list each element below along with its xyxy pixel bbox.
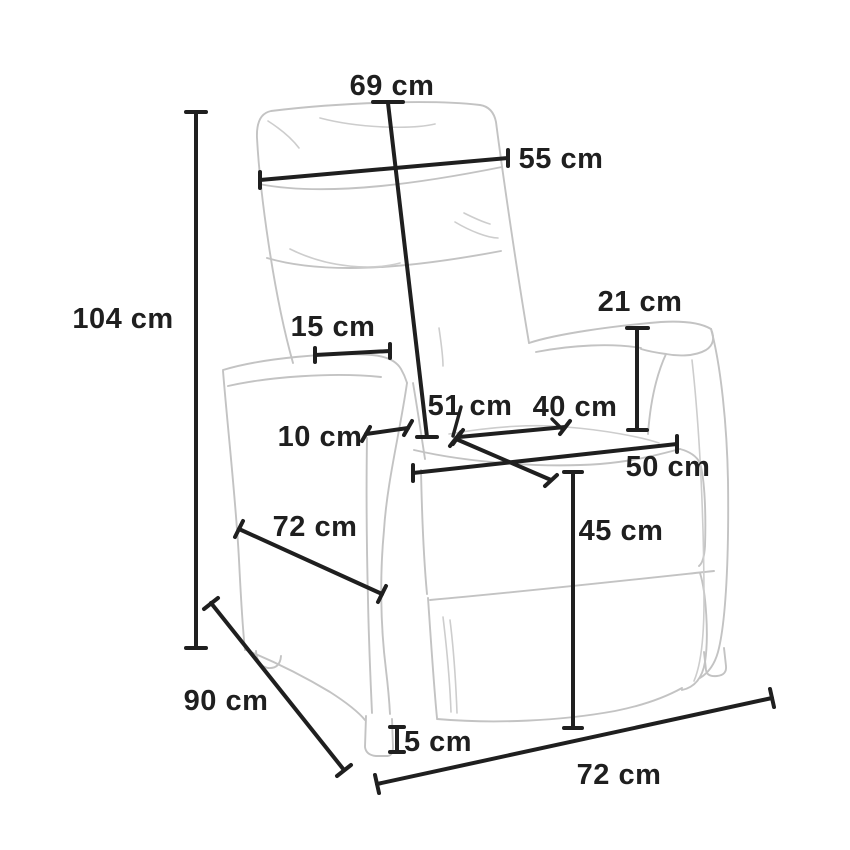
right-armrest-front-edge [648, 354, 666, 434]
dimension-backrest-to-armrest: 15 cm [291, 311, 390, 362]
right-panel-crease [692, 360, 704, 681]
footrest-left-edge [428, 598, 437, 718]
dimension-seat-front-width: 50 cm [413, 436, 710, 483]
dimension-line [260, 158, 508, 180]
front-column-left-edge [367, 438, 372, 713]
dimension-tick [375, 775, 379, 793]
dimension-seat-height: 45 cm [564, 472, 663, 728]
dimension-total-height: 104 cm [72, 112, 206, 648]
right-armrest-scroll [641, 329, 713, 355]
dimension-line [366, 428, 408, 434]
right-armrest-roll [536, 345, 641, 352]
backrest-crease-right-2 [464, 213, 490, 224]
backrest-crease-right [455, 222, 498, 238]
right-armrest-top [529, 322, 711, 343]
dimension-total-depth: 90 cm [184, 598, 351, 776]
front-left-foot [365, 716, 393, 756]
dimension-label: 69 cm [350, 70, 435, 102]
dimension-diagram-canvas: 69 cm 55 cm 104 cm 15 cm 21 cm [0, 0, 850, 850]
dimension-label: 45 cm [579, 515, 664, 547]
dimension-label: 40 cm [533, 391, 618, 423]
backrest-fold [439, 328, 443, 366]
dimension-label: 72 cm [577, 759, 662, 791]
left-side-outer-edge [223, 371, 245, 650]
dimension-side-base-depth: 72 cm [235, 511, 386, 602]
headrest-crease-top [320, 118, 435, 127]
dimension-foot-height: 5 cm [390, 726, 472, 758]
dimension-label: 104 cm [72, 303, 173, 335]
dimension-line [388, 103, 427, 437]
armchair-dimension-diagram: 69 cm 55 cm 104 cm 15 cm 21 cm [0, 0, 850, 850]
dimension-tick [770, 689, 774, 707]
dimension-label: 51 cm [428, 390, 513, 422]
dimension-label: 10 cm [278, 421, 363, 453]
dimension-label: 72 cm [273, 511, 358, 543]
dimension-label: 55 cm [519, 143, 604, 175]
dimension-label: 90 cm [184, 685, 269, 717]
dimension-label: 5 cm [404, 726, 472, 758]
dimension-label: 21 cm [598, 286, 683, 318]
dimension-label: 50 cm [626, 451, 711, 483]
backrest-crease-left [290, 249, 400, 267]
front-cushion-left-edge [421, 470, 427, 594]
dimension-line [315, 351, 390, 355]
dimension-armrest-width: 10 cm [278, 421, 412, 453]
headrest-crease-left [268, 121, 299, 148]
dimension-backrest-width: 55 cm [260, 143, 603, 188]
left-armrest-roll [228, 375, 381, 386]
footrest-fold-1 [443, 617, 451, 712]
front-bottom-edge [437, 688, 682, 721]
dimension-label: 15 cm [291, 311, 376, 343]
dimension-line [459, 427, 565, 437]
dimension-annotations: 69 cm 55 cm 104 cm 15 cm 21 cm [72, 70, 774, 793]
